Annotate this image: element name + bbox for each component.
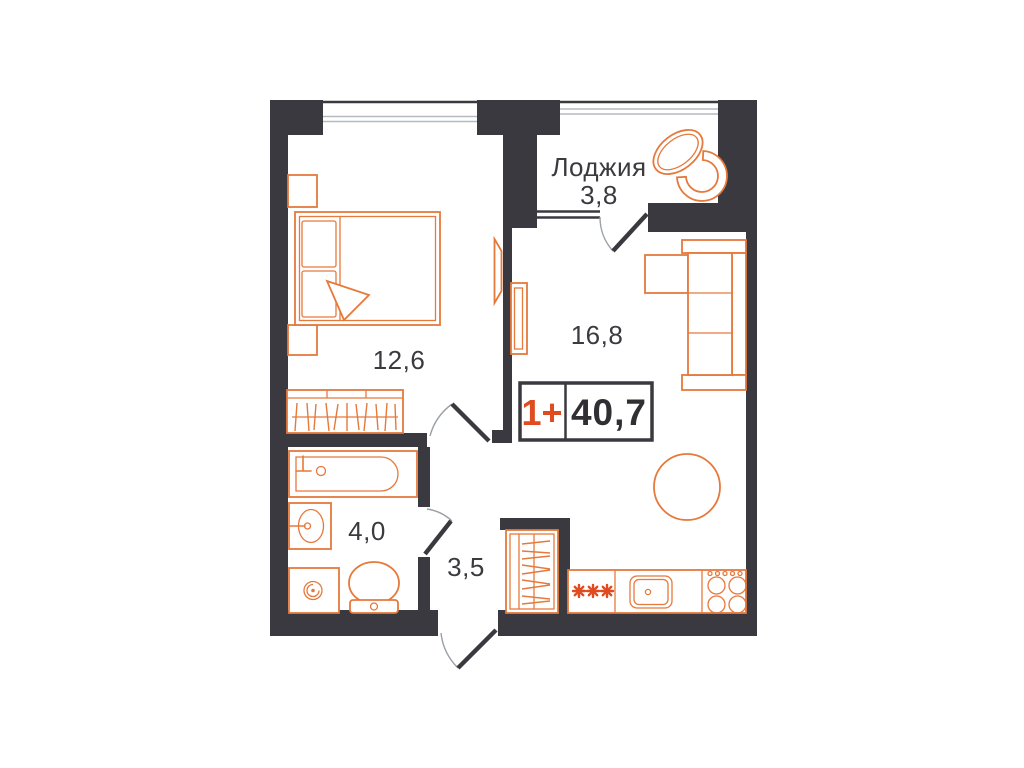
nightstand-top	[288, 175, 317, 207]
room-label-bathroom-area: 4,0	[348, 516, 386, 546]
loggia-inner-window	[537, 212, 600, 218]
bedroom-door-leaf	[452, 404, 489, 441]
sofa-armrest-top	[682, 240, 746, 253]
wall-bedroom-bathroom	[288, 433, 427, 447]
badge-layout: 1+	[521, 392, 562, 433]
loggia-door-arc	[600, 217, 613, 251]
sofa-armrest-bottom	[682, 375, 746, 390]
floor-plan-svg: Лоджия 3,8 16,8 12,6 4,0 3,5 1+ 40,7	[0, 0, 1024, 768]
floor-plan-canvas: Лоджия 3,8 16,8 12,6 4,0 3,5 1+ 40,7	[0, 0, 1024, 768]
loggia-door-leaf	[613, 214, 647, 251]
washing-machine	[289, 568, 339, 613]
round-dining-table	[654, 454, 720, 520]
loggia-door	[600, 214, 647, 251]
loggia-oval-table	[645, 121, 711, 183]
wall-divider-foot	[492, 430, 512, 443]
kitchen-counter	[568, 570, 746, 613]
sofa-chaise	[645, 255, 688, 293]
bathtub	[289, 451, 417, 497]
room-label-bedroom-area: 12,6	[373, 345, 426, 375]
wall-outer-bottom-left	[270, 610, 438, 636]
dining-set	[624, 424, 749, 549]
room-label-loggia-name: Лоджия	[551, 152, 646, 182]
wall-bathroom-right-upper	[418, 447, 430, 507]
wall-outer-top-mid	[477, 100, 560, 135]
wall-outer-bottom-right	[498, 610, 757, 636]
bedroom-window-glass	[323, 100, 477, 135]
bathroom-door-leaf	[425, 521, 451, 554]
loggia-furniture	[645, 121, 727, 201]
bedroom-door	[430, 404, 489, 441]
tv-panel-bedroom	[495, 239, 502, 303]
sofa-backrest	[732, 253, 746, 375]
bedroom-window	[323, 100, 477, 135]
room-label-loggia-area: 3,8	[580, 180, 618, 210]
bedroom-furniture	[287, 175, 502, 433]
nightstand-bottom	[288, 325, 317, 355]
area-badge: 1+ 40,7	[520, 383, 652, 440]
wardrobe-hangers	[287, 390, 403, 433]
tv-panel-living	[511, 283, 527, 354]
wall-loggia-living	[648, 203, 746, 232]
bedroom-door-arc	[430, 404, 452, 436]
loggia-glazing	[560, 102, 718, 114]
wall-bedroom-divider-upper	[503, 135, 537, 228]
sofa-seats	[688, 253, 732, 375]
badge-total-area: 40,7	[571, 392, 647, 433]
wall-closet-top	[500, 518, 570, 530]
room-label-hallway-area: 3,5	[447, 552, 485, 582]
entrance-door-leaf	[458, 630, 496, 668]
wall-outer-left	[270, 100, 288, 636]
toilet-tank	[350, 600, 398, 613]
corner-sofa	[645, 240, 746, 390]
bathroom-door	[425, 509, 452, 554]
bed-frame	[295, 212, 440, 325]
entrance-door-arc	[441, 633, 458, 668]
room-label-living-area: 16,8	[571, 320, 624, 350]
hall-closet-hangers	[506, 530, 558, 613]
wall-bathroom-right-lower	[418, 557, 430, 610]
bathroom-door-arc	[427, 509, 452, 521]
fridge-snowflakes	[573, 585, 613, 597]
wall-outer-right	[746, 232, 757, 636]
entrance-door	[441, 630, 496, 668]
toilet	[349, 562, 399, 613]
toilet-bowl	[349, 562, 399, 604]
double-bed	[295, 212, 440, 325]
wall-outer-top-left	[270, 100, 323, 135]
wash-basin	[289, 503, 331, 549]
